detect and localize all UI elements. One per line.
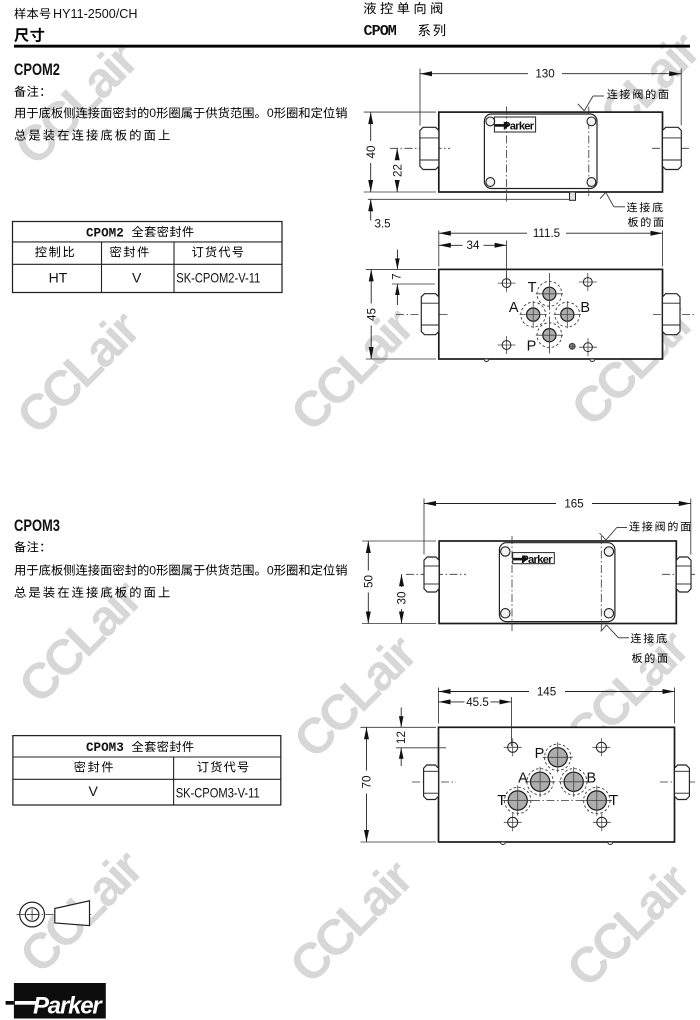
svg-text:30: 30 — [396, 592, 409, 605]
svg-text:CCLair: CCLair — [280, 297, 425, 442]
svg-text:0: 0 — [267, 563, 274, 577]
svg-text:CPOM2: CPOM2 — [86, 226, 124, 240]
svg-text:HT: HT — [49, 270, 68, 286]
svg-text:50: 50 — [362, 575, 375, 588]
svg-text:T: T — [528, 280, 537, 296]
svg-text:0: 0 — [149, 563, 156, 577]
svg-text:130: 130 — [535, 68, 554, 81]
svg-text:145: 145 — [537, 685, 556, 698]
svg-text:CCLair: CCLair — [279, 849, 424, 994]
svg-text:HY11-2500/CH: HY11-2500/CH — [53, 7, 137, 21]
svg-text:CPOM2: CPOM2 — [14, 60, 60, 79]
svg-text:A: A — [518, 771, 528, 787]
svg-text:P: P — [527, 339, 537, 355]
svg-text:B: B — [580, 300, 590, 316]
svg-text:7: 7 — [391, 273, 404, 279]
svg-text:22: 22 — [391, 164, 404, 177]
svg-text:P: P — [535, 746, 545, 762]
svg-text:Parker: Parker — [521, 554, 553, 566]
svg-text:A: A — [509, 300, 519, 316]
svg-text:CPOM3: CPOM3 — [14, 516, 60, 535]
svg-text:CCLair: CCLair — [556, 853, 700, 998]
svg-text:12: 12 — [395, 731, 408, 744]
svg-text:CPOM: CPOM — [364, 23, 397, 40]
svg-text:45.5: 45.5 — [466, 696, 489, 709]
svg-text:165: 165 — [564, 497, 583, 510]
svg-text:Parker: Parker — [33, 992, 103, 1019]
svg-text:B: B — [586, 771, 596, 787]
svg-text:CCLair: CCLair — [283, 624, 428, 769]
svg-text:111.5: 111.5 — [533, 227, 560, 240]
svg-text:Parker: Parker — [503, 121, 535, 133]
svg-text:70: 70 — [361, 776, 374, 789]
svg-text:34: 34 — [467, 239, 480, 252]
svg-text:T: T — [497, 793, 506, 809]
svg-text:CPOM3: CPOM3 — [86, 741, 124, 755]
svg-text:V: V — [132, 270, 142, 286]
svg-text:0: 0 — [149, 106, 156, 120]
svg-text:V: V — [89, 783, 99, 799]
svg-text:CCLair: CCLair — [6, 300, 151, 445]
svg-text:SK-CPOM3-V-11: SK-CPOM3-V-11 — [176, 785, 260, 801]
svg-text:40: 40 — [365, 146, 378, 159]
svg-text:T: T — [609, 793, 618, 809]
svg-text:3.5: 3.5 — [375, 218, 391, 231]
svg-text:SK-CPOM2-V-11: SK-CPOM2-V-11 — [176, 269, 260, 285]
svg-text:45: 45 — [365, 308, 378, 321]
svg-text:CCLair: CCLair — [4, 31, 149, 176]
svg-text:0: 0 — [267, 106, 274, 120]
